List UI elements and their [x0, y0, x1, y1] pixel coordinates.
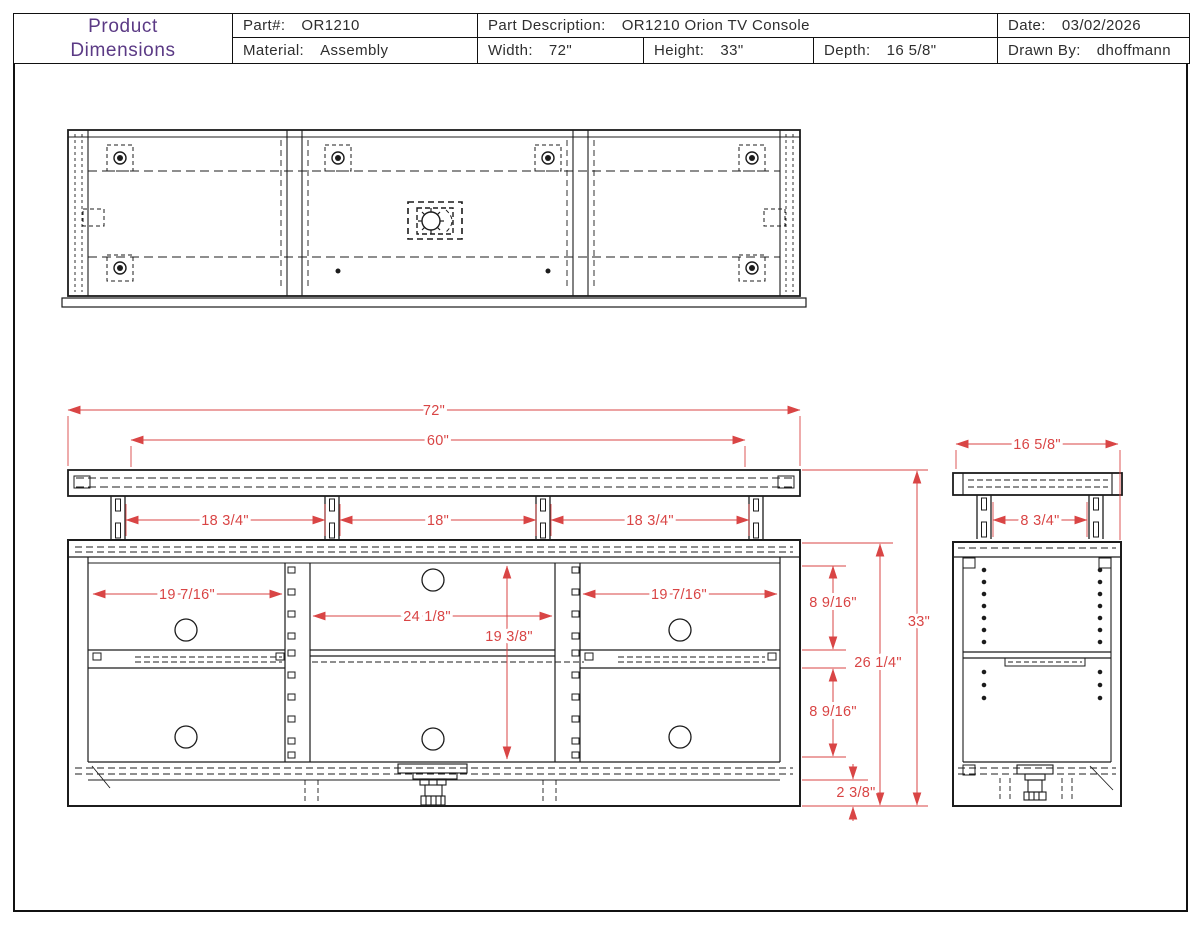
cable-hole: [669, 726, 691, 748]
cable-hole: [422, 728, 444, 750]
dim-leg-gap-left: 18 3/4": [201, 513, 249, 529]
riser-leg: [111, 496, 125, 540]
dim-center-opening: 24 1/8": [403, 609, 451, 625]
dim-side-leg-gap: 8 3/4": [1020, 513, 1059, 529]
dim-leg-span: 60": [427, 433, 449, 449]
dim-body-height: 26 1/4": [854, 655, 902, 671]
dim-upper-section: 8 9/16": [809, 595, 857, 611]
leveling-foot: [1017, 765, 1053, 800]
shelf-standards: [288, 567, 579, 758]
side-top-board: [953, 473, 1122, 495]
riser-leg: [977, 495, 991, 539]
dim-overall-depth: 16 5/8": [1013, 437, 1061, 453]
left-side-tab: [83, 209, 104, 226]
shelf-pin-holes: [982, 670, 986, 700]
dim-leg-gap-center: 18": [427, 513, 449, 529]
right-side-tab: [764, 209, 785, 226]
dim-left-opening: 19 7/16": [159, 587, 215, 603]
dim-base-height: 2 3/8": [836, 785, 875, 801]
dimension-labels: 72" 60" 18 3/4" 18" 18 3/4" 19 7/16" 24 …: [159, 403, 1061, 801]
dim-leg-gap-right: 18 3/4": [626, 513, 674, 529]
dimension-annotations: [68, 410, 1120, 821]
dim-center-opening-height: 19 3/8": [485, 629, 533, 645]
side-cabinet-body: [953, 542, 1121, 806]
riser-leg: [1089, 495, 1103, 539]
dim-overall-width: 72": [423, 403, 445, 419]
cad-drawing-canvas: 72" 60" 18 3/4" 18" 18 3/4" 19 7/16" 24 …: [0, 0, 1203, 927]
dim-overall-height: 33": [908, 614, 930, 630]
screw-mark: [325, 145, 351, 171]
drawing-sheet: Product Dimensions Part#: OR1210 Part De…: [0, 0, 1203, 927]
cable-grommet: [408, 202, 462, 239]
screw-mark: [107, 255, 133, 281]
cable-hole: [175, 619, 197, 641]
riser-leg: [749, 496, 763, 540]
cabinet-body: [68, 540, 800, 806]
cable-hole: [422, 569, 444, 591]
cable-hole: [669, 619, 691, 641]
dim-right-opening: 19 7/16": [651, 587, 707, 603]
shelf-pin-holes: [982, 568, 986, 644]
top-plan-view: [62, 130, 806, 307]
shelf-pin-holes: [1098, 670, 1102, 700]
screw-mark: [107, 145, 133, 171]
dim-lower-section: 8 9/16": [809, 704, 857, 720]
top-board: [68, 470, 800, 496]
leveling-foot: [398, 764, 467, 805]
cable-hole: [175, 726, 197, 748]
riser-leg: [325, 496, 339, 540]
screw-mark: [535, 145, 561, 171]
riser-leg: [536, 496, 550, 540]
shelf-pin-holes: [1098, 568, 1102, 644]
screw-mark: [739, 255, 765, 281]
screw-mark: [739, 145, 765, 171]
